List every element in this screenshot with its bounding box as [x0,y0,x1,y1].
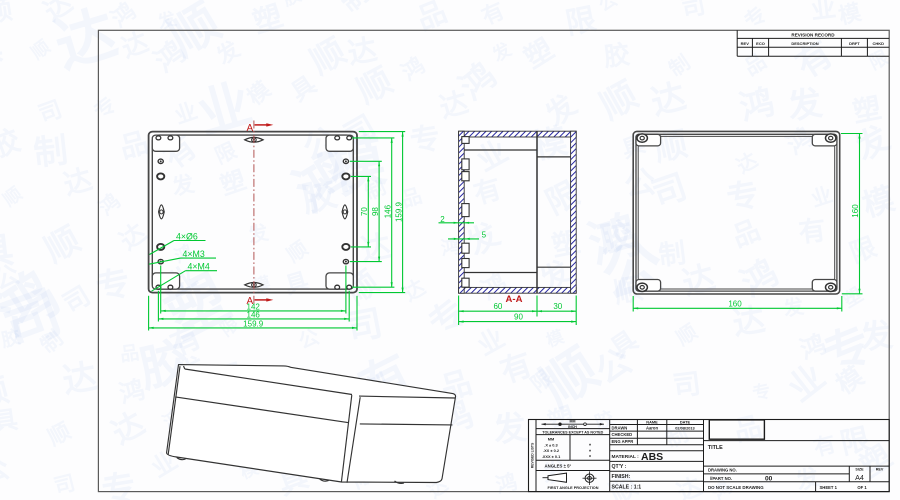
svg-text:REVISED LISTS: REVISED LISTS [531,442,535,468]
svg-text:发: 发 [488,38,516,66]
svg-text:.XXX ± 0.1: .XXX ± 0.1 [542,454,561,459]
svg-text:MM: MM [548,437,554,442]
svg-text:4×Ø6: 4×Ø6 [176,231,198,241]
svg-text:司: 司 [35,95,66,127]
svg-text:达: 达 [678,259,718,302]
svg-text:顺: 顺 [531,338,609,418]
svg-text:A4: A4 [855,473,864,482]
svg-text:品: 品 [117,127,152,164]
svg-text:DESCRIPTION: DESCRIPTION [791,41,818,46]
svg-text:达: 达 [60,163,95,201]
svg-text:4×M4: 4×M4 [188,262,210,272]
svg-text:顺: 顺 [38,220,86,270]
svg-text:业: 业 [471,135,513,178]
svg-text:鸿: 鸿 [397,52,429,85]
svg-text:业: 业 [808,183,835,211]
svg-text:鸿: 鸿 [493,469,519,497]
svg-text:顺: 顺 [0,0,15,28]
svg-text:制: 制 [335,0,374,18]
svg-text:鸿: 鸿 [736,83,778,128]
svg-text:胶: 胶 [280,0,305,10]
svg-text:00: 00 [765,475,773,482]
svg-text:SCALE : 1:1: SCALE : 1:1 [612,485,642,491]
svg-text:发: 发 [539,456,569,489]
svg-text:品: 品 [728,215,764,253]
svg-text:品: 品 [413,0,452,36]
svg-text:60: 60 [493,302,502,311]
svg-text:塑: 塑 [549,226,582,262]
svg-text:发: 发 [491,408,528,449]
svg-text:发: 发 [169,171,198,200]
svg-text:塑: 塑 [217,166,250,201]
svg-text:具: 具 [282,267,312,299]
svg-text:有: 有 [811,431,839,461]
svg-text:CHECKED: CHECKED [612,432,633,437]
svg-text:专: 专 [740,2,772,34]
svg-text:达: 达 [106,405,150,451]
svg-text:98: 98 [371,207,380,216]
svg-text:具: 具 [0,406,20,437]
svg-text:业: 业 [809,0,837,25]
svg-text:REV: REV [741,41,750,46]
svg-text:DRAWING NO.: DRAWING NO. [708,468,737,473]
svg-text:A-A: A-A [506,294,523,305]
svg-text:顺: 顺 [672,320,701,350]
svg-text:品: 品 [731,411,764,447]
svg-text:ECO: ECO [756,41,765,46]
svg-text:30: 30 [553,302,562,311]
svg-text:ENG APPR: ENG APPR [612,439,634,444]
svg-text:达: 达 [400,276,430,307]
svg-text:限: 限 [212,139,241,169]
svg-text:制: 制 [32,132,70,173]
svg-text:司: 司 [679,0,708,23]
svg-text:160: 160 [728,299,742,308]
svg-text:达: 达 [60,358,100,401]
svg-text:REV: REV [876,467,884,471]
svg-text:CHKD: CHKD [873,41,885,46]
svg-text:FINISH:: FINISH: [612,474,631,480]
svg-text:达: 达 [733,148,762,178]
svg-text:达: 达 [115,218,152,255]
svg-text:.XX ± 0.2: .XX ± 0.2 [543,448,560,453]
svg-text:90: 90 [514,312,523,321]
svg-text:塑: 塑 [839,283,867,313]
svg-text:ABS: ABS [641,451,663,463]
svg-text:4×M3: 4×M3 [183,249,205,259]
svg-text:品: 品 [740,50,770,81]
svg-text:REVISION RECORD: REVISION RECORD [791,32,835,37]
svg-text:TITLE: TITLE [708,445,723,451]
svg-text:146: 146 [247,310,261,319]
svg-text:159.9: 159.9 [394,201,403,222]
svg-text:限: 限 [845,231,880,268]
svg-text:具: 具 [286,71,321,107]
svg-text:模: 模 [836,0,864,29]
svg-text:发: 发 [792,463,823,495]
svg-text:Aaron: Aaron [646,426,659,431]
svg-text:专: 专 [408,122,443,159]
svg-text:有: 有 [797,215,827,248]
svg-text:达: 达 [673,473,706,500]
svg-text:OF 1: OF 1 [857,485,867,490]
svg-text:顺: 顺 [27,36,53,63]
svg-text:有: 有 [478,0,508,30]
svg-text:专: 专 [422,292,474,344]
svg-text:70: 70 [360,207,369,216]
svg-text:专: 专 [724,176,762,217]
svg-text:MM: MM [570,420,576,424]
svg-text:159.9: 159.9 [243,319,264,328]
svg-text:鸿: 鸿 [735,253,785,304]
svg-text:专: 专 [750,380,772,404]
svg-text:司: 司 [671,368,703,402]
svg-text:FIRST ANGLE PROJECTION: FIRST ANGLE PROJECTION [548,486,599,490]
svg-text:业: 业 [781,357,833,409]
svg-text:有: 有 [470,173,504,209]
svg-text:A: A [246,123,253,134]
svg-text:公: 公 [296,325,323,354]
svg-text:SIZE: SIZE [855,467,864,471]
svg-text:公: 公 [0,452,13,490]
svg-text:胶: 胶 [0,123,25,165]
svg-text:专: 专 [99,468,139,500]
svg-text:.X ± 0.3: .X ± 0.3 [544,443,558,448]
svg-text:发: 发 [245,220,272,248]
svg-text:模: 模 [858,181,898,224]
svg-text:DRFT: DRFT [849,41,860,46]
svg-text:塑: 塑 [519,33,559,74]
svg-text:专: 专 [89,92,120,124]
svg-text:ANGLES ± 5°: ANGLES ± 5° [545,463,572,468]
svg-text:司: 司 [52,471,78,498]
svg-text:公: 公 [595,0,621,15]
svg-text:NAME: NAME [646,420,658,425]
svg-text:QT'Y :: QT'Y : [612,464,627,470]
svg-text://PART NO.: //PART NO. [710,476,732,481]
svg-text:塑: 塑 [249,0,287,40]
svg-text:TOLERANCES EXCEPT AS NOTED: TOLERANCES EXCEPT AS NOTED [542,431,603,435]
svg-text:限: 限 [563,3,599,41]
svg-text:DATE: DATE [680,420,691,425]
svg-text:公: 公 [0,89,1,133]
svg-text:DO NOT SCALE DRAWING: DO NOT SCALE DRAWING [708,485,764,490]
svg-text:顺: 顺 [593,74,644,127]
svg-text:160: 160 [851,204,860,218]
svg-text:达: 达 [358,230,394,268]
svg-text:发: 发 [785,84,825,127]
svg-text:02/08/2013: 02/08/2013 [675,426,695,431]
svg-text:达: 达 [647,77,690,123]
svg-text:INCH: INCH [568,425,577,429]
svg-text:胶: 胶 [602,39,631,72]
svg-text:顺: 顺 [44,418,75,450]
svg-text:SHEET 1: SHEET 1 [820,485,838,490]
svg-text:顺: 顺 [0,183,26,210]
svg-text:2: 2 [440,215,445,224]
svg-text:DRAWN: DRAWN [612,426,628,431]
svg-text:5: 5 [482,231,487,240]
svg-text:限: 限 [540,175,585,222]
svg-text:发: 发 [781,294,807,321]
svg-text:具: 具 [0,30,5,69]
svg-text:146: 146 [383,204,392,218]
svg-text:顺: 顺 [283,237,313,267]
svg-text:MATERIAL :: MATERIAL : [612,454,640,460]
svg-text:限: 限 [866,46,893,74]
